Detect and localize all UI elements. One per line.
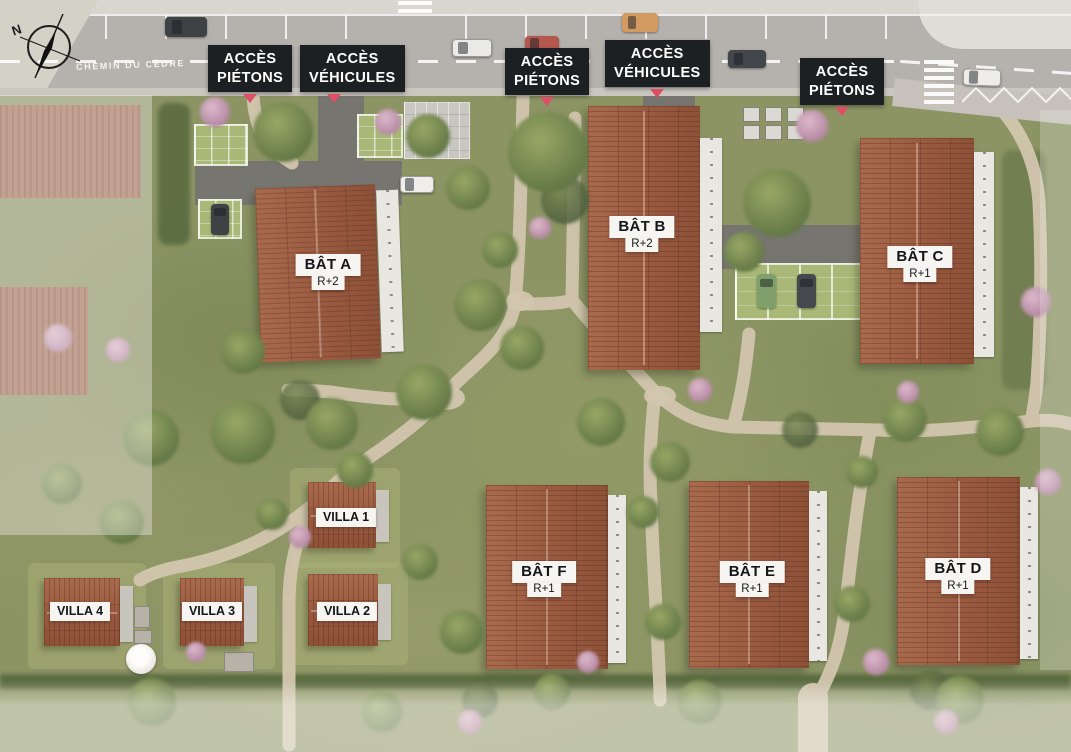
car bbox=[963, 68, 1002, 86]
access-marker-icon bbox=[650, 89, 664, 98]
building-name: BÂT D bbox=[925, 558, 990, 580]
label-bat-d[interactable]: BÂT D R+1 bbox=[925, 558, 990, 594]
building-name: BÂT E bbox=[720, 561, 785, 583]
parking-bay-line bbox=[885, 15, 887, 39]
building-floors: R+1 bbox=[903, 268, 936, 282]
balcony-strip bbox=[974, 152, 994, 357]
parking-bay-line bbox=[105, 15, 107, 39]
garden-shed bbox=[134, 606, 150, 628]
access-line1: ACCÈS bbox=[514, 53, 580, 72]
terrace-strip bbox=[376, 490, 389, 542]
access-line2: PIÉTONS bbox=[809, 82, 875, 101]
car bbox=[400, 176, 434, 193]
access-marker-icon bbox=[243, 94, 257, 103]
crosswalk bbox=[398, 1, 432, 17]
access-label-pietons-3: ACCÈSPIÉTONS bbox=[800, 58, 884, 116]
access-line1: ACCÈS bbox=[809, 63, 875, 82]
car bbox=[452, 39, 492, 57]
play-equipment bbox=[765, 125, 782, 140]
building-name: BÂT C bbox=[887, 246, 952, 268]
sidewalk-plaza bbox=[918, 0, 1071, 50]
balcony-strip bbox=[809, 491, 827, 661]
parking-bay-line bbox=[705, 15, 707, 39]
curb-line bbox=[0, 14, 1071, 16]
access-line1: ACCÈS bbox=[614, 45, 701, 64]
building-floors: R+2 bbox=[311, 276, 344, 290]
car bbox=[622, 13, 658, 32]
car bbox=[757, 274, 776, 308]
car bbox=[165, 17, 207, 37]
play-equipment bbox=[743, 107, 760, 122]
balcony-strip bbox=[700, 138, 722, 332]
play-equipment bbox=[787, 125, 804, 140]
building-name: BÂT B bbox=[609, 216, 674, 238]
terrace-strip bbox=[244, 586, 257, 642]
building-name: BÂT F bbox=[512, 561, 576, 583]
parking-bay-line bbox=[825, 15, 827, 39]
garden-bench bbox=[134, 630, 152, 644]
terrace-strip bbox=[378, 584, 391, 640]
label-bat-b[interactable]: BÂT B R+2 bbox=[609, 216, 674, 252]
access-line1: ACCÈS bbox=[309, 50, 396, 69]
terrace-strip bbox=[120, 586, 133, 642]
car bbox=[452, 176, 484, 192]
label-villa-1[interactable]: VILLA 1 bbox=[316, 508, 376, 527]
balcony-strip bbox=[1020, 487, 1038, 659]
building-floors: R+1 bbox=[527, 583, 560, 597]
label-bat-c[interactable]: BÂT C R+1 bbox=[887, 246, 952, 282]
access-label-pietons-2: ACCÈSPIÉTONS bbox=[505, 48, 589, 106]
parking-bay-line bbox=[585, 15, 587, 39]
access-line1: ACCÈS bbox=[217, 50, 283, 69]
access-label-pietons-1: ACCÈSPIÉTONS bbox=[208, 45, 292, 103]
building-floors: R+1 bbox=[941, 580, 974, 594]
car bbox=[797, 274, 816, 308]
label-bat-a[interactable]: BÂT A R+2 bbox=[296, 254, 361, 290]
garden-table bbox=[224, 652, 254, 672]
balcony-strip bbox=[376, 190, 404, 353]
parking-bay-line bbox=[345, 15, 347, 39]
car bbox=[211, 204, 229, 235]
access-marker-icon bbox=[835, 107, 849, 116]
access-line2: PIÉTONS bbox=[514, 72, 580, 91]
parking-bay-line bbox=[285, 15, 287, 39]
label-bat-e[interactable]: BÂT E R+1 bbox=[720, 561, 785, 597]
access-line2: PIÉTONS bbox=[217, 69, 283, 88]
building-floors: R+2 bbox=[625, 238, 658, 252]
label-villa-3[interactable]: VILLA 3 bbox=[182, 602, 242, 621]
label-villa-4[interactable]: VILLA 4 bbox=[50, 602, 110, 621]
access-line2: VÉHICULES bbox=[309, 69, 396, 88]
crosswalk bbox=[924, 60, 954, 106]
access-marker-icon bbox=[327, 94, 341, 103]
building-name: BÂT A bbox=[296, 254, 361, 276]
compass-north-label: N bbox=[10, 21, 24, 38]
masterplan-canvas: CHEMIN DU CÈDRE bbox=[0, 0, 1071, 752]
play-equipment bbox=[765, 107, 782, 122]
parasol bbox=[126, 644, 156, 674]
access-line2: VÉHICULES bbox=[614, 64, 701, 83]
label-villa-2[interactable]: VILLA 2 bbox=[317, 602, 377, 621]
compass-icon: N bbox=[6, 4, 94, 92]
play-equipment bbox=[743, 125, 760, 140]
label-bat-f[interactable]: BÂT F R+1 bbox=[512, 561, 576, 597]
parking-bay-line bbox=[465, 15, 467, 39]
balcony-strip bbox=[608, 495, 626, 663]
access-label-vehicules-2: ACCÈSVÉHICULES bbox=[605, 40, 710, 98]
parking-bay-line bbox=[225, 15, 227, 39]
access-marker-icon bbox=[540, 97, 554, 106]
parking-bay-line bbox=[765, 15, 767, 39]
car bbox=[728, 50, 766, 68]
access-label-vehicules-1: ACCÈSVÉHICULES bbox=[300, 45, 405, 103]
building-floors: R+1 bbox=[735, 583, 768, 597]
